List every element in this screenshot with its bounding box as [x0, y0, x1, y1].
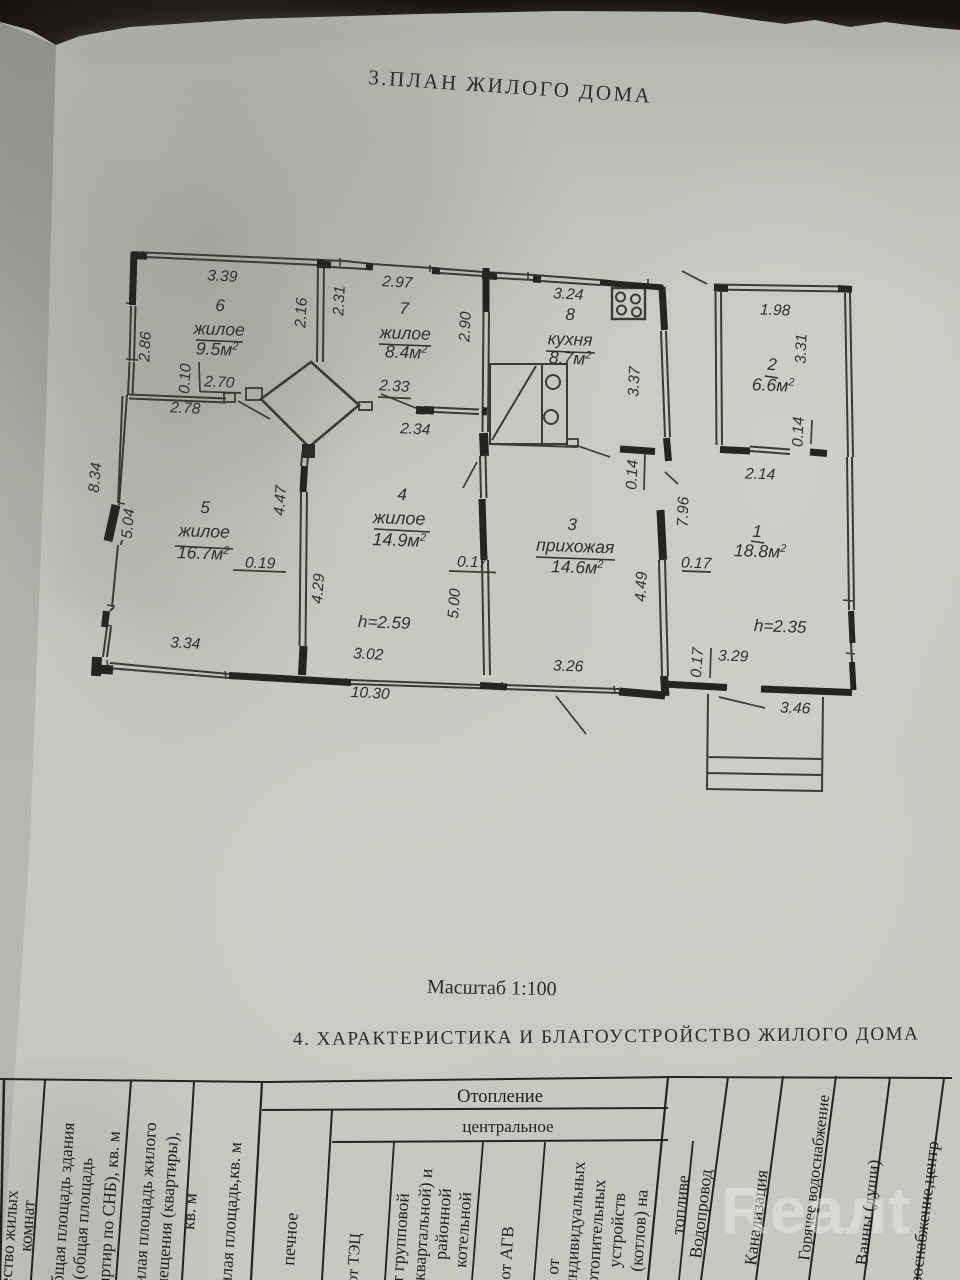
svg-text:печное: печное — [278, 1212, 302, 1266]
svg-text:4.49: 4.49 — [632, 571, 651, 602]
svg-text:кв. м: кв. м — [178, 1192, 201, 1230]
svg-text:0.14: 0.14 — [623, 459, 642, 490]
svg-text:комнат: комнат — [15, 1199, 39, 1252]
svg-text:2.90: 2.90 — [456, 311, 475, 343]
svg-text:0.19: 0.19 — [245, 554, 276, 572]
svg-text:3.26: 3.26 — [553, 657, 584, 675]
svg-text:от ТЭЦ: от ТЭЦ — [344, 1232, 365, 1280]
svg-text:2.86: 2.86 — [136, 331, 155, 363]
svg-text:7: 7 — [399, 299, 410, 318]
svg-text:5.04: 5.04 — [119, 507, 139, 539]
svg-text:2.97: 2.97 — [381, 273, 415, 292]
svg-text:0.17: 0.17 — [681, 554, 713, 572]
svg-text:2.31: 2.31 — [330, 285, 349, 317]
svg-text:Масштаб 1:100: Масштаб 1:100 — [427, 976, 557, 1000]
svg-text:2.34: 2.34 — [399, 420, 431, 439]
svg-text:3.37: 3.37 — [625, 365, 644, 397]
svg-text:10.30: 10.30 — [350, 684, 390, 703]
svg-text:3.34: 3.34 — [170, 634, 201, 653]
svg-text:5: 5 — [200, 498, 211, 517]
svg-text:8: 8 — [565, 305, 576, 324]
svg-text:4: 4 — [397, 485, 407, 504]
svg-text:центральное: центральное — [462, 1117, 553, 1136]
svg-text:жилое: жилое — [372, 507, 426, 529]
svg-text:3.29: 3.29 — [718, 647, 749, 665]
svg-text:прихожая: прихожая — [536, 535, 615, 558]
svg-text:3.31: 3.31 — [792, 333, 810, 364]
svg-text:2.14: 2.14 — [744, 465, 776, 483]
svg-text:14.9м2: 14.9м2 — [372, 529, 426, 551]
svg-text:0.14: 0.14 — [789, 416, 807, 447]
svg-text:от АГВ: от АГВ — [495, 1226, 518, 1280]
svg-text:Отопление: Отопление — [457, 1087, 543, 1107]
svg-text:7.96: 7.96 — [674, 496, 692, 527]
svg-text:h=2.59: h=2.59 — [358, 612, 412, 633]
svg-text:5.00: 5.00 — [445, 588, 464, 620]
svg-text:3.46: 3.46 — [780, 699, 811, 717]
svg-text:1.98: 1.98 — [760, 301, 791, 319]
svg-text:0.17: 0.17 — [457, 553, 489, 571]
svg-text:4.47: 4.47 — [271, 484, 290, 517]
svg-text:0.17: 0.17 — [688, 646, 707, 679]
svg-text:от: от — [542, 1257, 563, 1275]
svg-text:h=2.35: h=2.35 — [754, 616, 808, 637]
svg-text:жилое: жилое — [177, 520, 230, 542]
svg-text:3.39: 3.39 — [207, 267, 238, 286]
svg-text:4.29: 4.29 — [309, 573, 328, 605]
svg-text:16.7м2: 16.7м2 — [177, 542, 230, 564]
svg-text:3.24: 3.24 — [553, 285, 585, 304]
svg-text:1: 1 — [752, 522, 762, 541]
svg-text:18.8м2: 18.8м2 — [734, 540, 787, 562]
svg-text:жилое: жилое — [192, 318, 245, 340]
svg-text:2.33: 2.33 — [378, 377, 410, 396]
svg-text:8.34: 8.34 — [86, 461, 106, 493]
svg-text:0.10: 0.10 — [176, 363, 195, 394]
svg-text:2.78: 2.78 — [169, 399, 201, 418]
svg-text:2.70: 2.70 — [203, 373, 235, 392]
svg-text:6: 6 — [215, 296, 226, 315]
svg-text:2.16: 2.16 — [292, 297, 311, 329]
svg-text:3.02: 3.02 — [353, 645, 384, 664]
svg-text:2: 2 — [766, 355, 778, 374]
svg-text:3: 3 — [567, 515, 578, 534]
